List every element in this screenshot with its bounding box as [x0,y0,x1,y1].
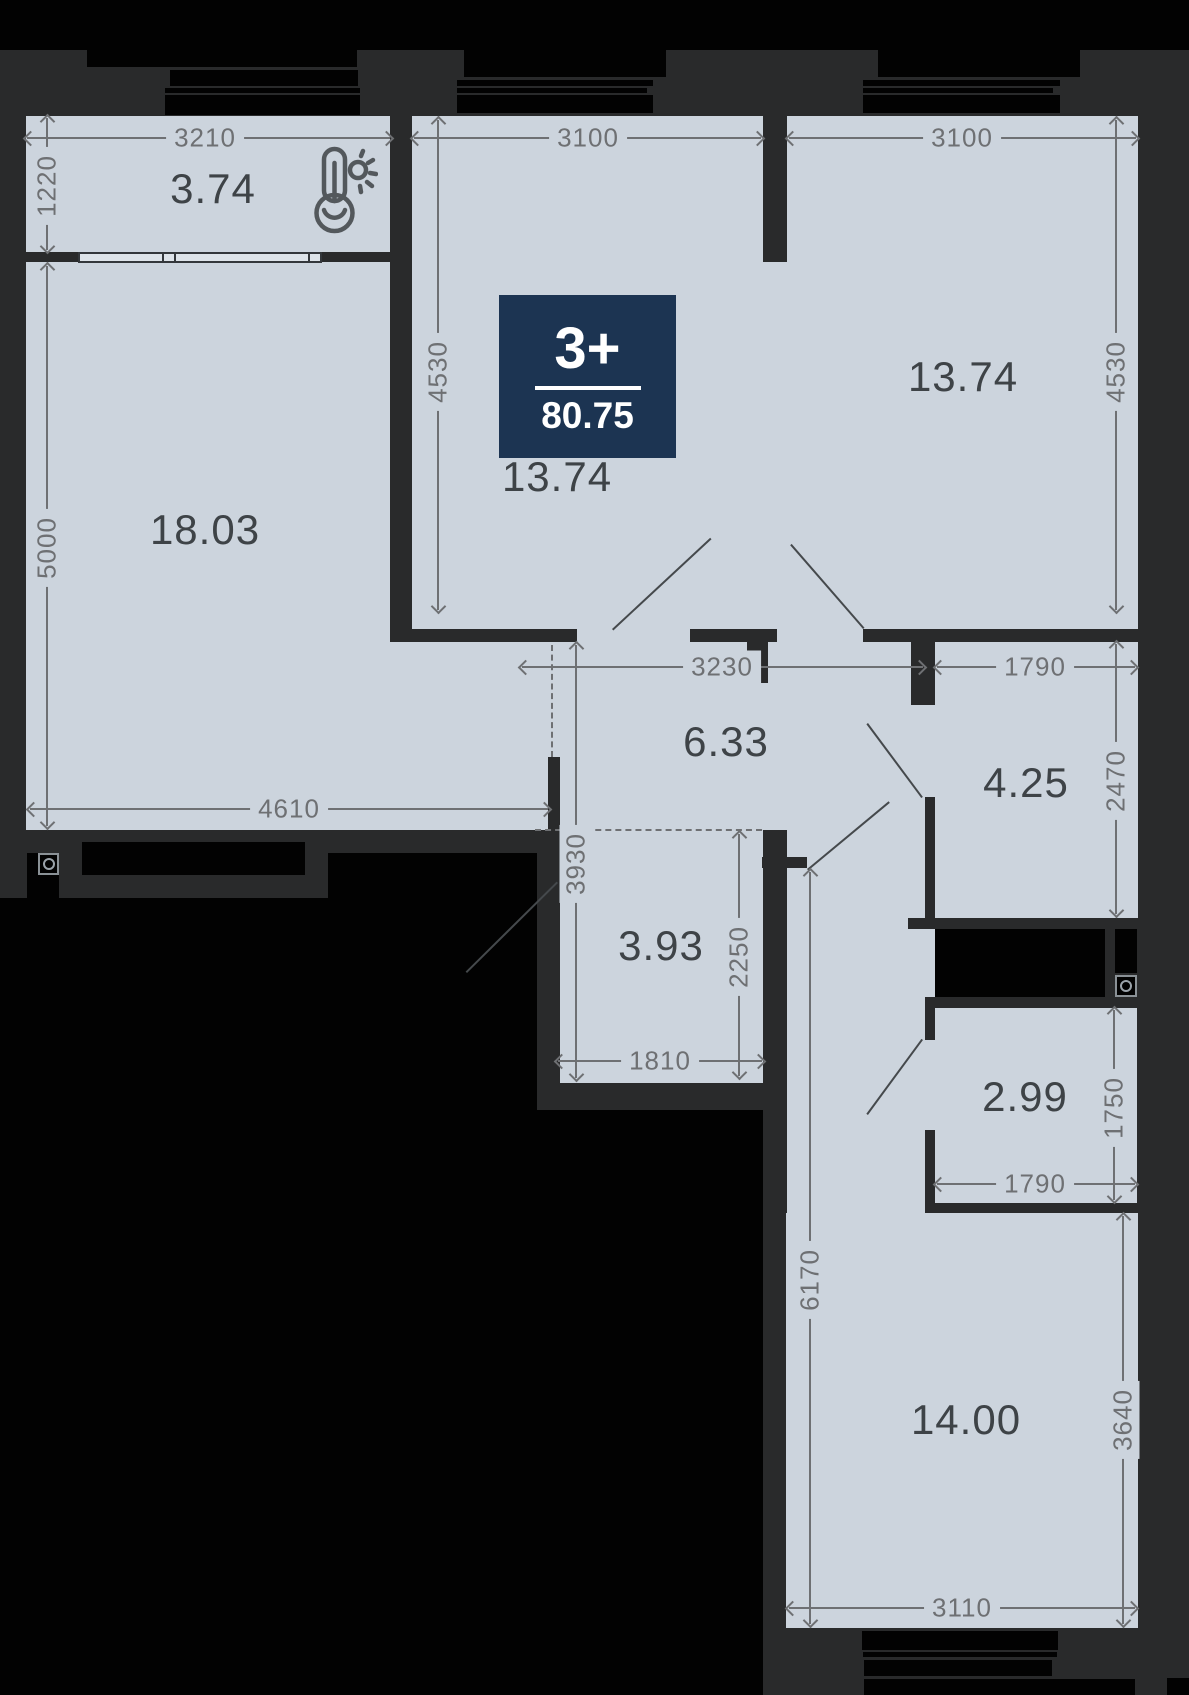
dimension-line: 4610 [30,808,548,810]
dimension-label: 2250 [723,918,756,996]
dimension-label: 3100 [923,122,1001,155]
wall [537,850,560,883]
room-area-label: 3.93 [618,922,704,970]
room-area-label: 3.74 [170,165,256,213]
neighbor-balcony [864,1679,1135,1695]
dimension-label: 1220 [31,147,64,225]
window-tick [174,254,176,261]
room-area-label: 14.00 [911,1396,1021,1444]
wall [908,918,1160,929]
neighbor-balcony [862,1631,1058,1650]
dimension-label: 1750 [1098,1069,1131,1147]
wall [762,857,807,868]
exterior-area [328,853,537,903]
dimension-label: 1790 [996,1168,1074,1201]
neighbor-balcony [863,1652,1057,1657]
dimension-line: 3930 [575,645,577,1078]
exterior-area [0,898,537,1695]
room-area-label: 13.74 [908,353,1018,401]
wall [390,629,577,642]
room-area-label: 6.33 [683,718,769,766]
exterior-area [537,1110,763,1695]
neighbor-balcony [878,30,1080,77]
dimension-label: 4530 [422,333,455,411]
apartment-rooms-label: 3+ [554,320,620,378]
neighbor-balcony [170,70,358,86]
dimension-label: 2470 [1100,742,1133,820]
dimension-label: 5000 [31,509,64,587]
neighbor-balcony [864,1660,1052,1676]
neighbor-balcony [863,88,1053,93]
dimension-label: 3210 [166,122,244,155]
room-area-label: 13.74 [502,453,612,501]
wall [537,1083,763,1110]
window-tick [308,254,310,261]
dimension-line: 1790 [937,666,1135,668]
neighbor-balcony [165,95,360,115]
cooktop-burner [1120,980,1132,992]
neighbor-balcony [457,95,653,113]
wall [925,1130,935,1213]
dimension-label: 3640 [1107,1381,1140,1459]
neighbor-balcony [457,80,653,86]
neighbor-balcony [165,88,360,93]
wall [390,262,412,630]
floor-plan: 3210 3100 3100 4610 3230 1790 1810 1790 … [0,0,1189,1695]
exterior-area [1167,1678,1189,1695]
apartment-badge: 3+ 80.75 [499,295,676,458]
wall [548,757,560,832]
neighbor-balcony [87,50,357,67]
badge-divider [535,386,641,390]
kitchen-counter [935,929,1105,997]
dimension-line: 1750 [1113,1010,1115,1200]
dimension-line: 1220 [46,118,48,250]
kitchen-counter [82,842,305,875]
dimension-line: 5000 [46,266,48,826]
dimension-line: 3210 [27,137,390,139]
neighbor-balcony [457,88,647,93]
cooktop-icon [1115,929,1137,973]
room-area-label: 2.99 [982,1073,1068,1121]
wall [925,1008,935,1040]
dimension-label: 3930 [560,825,593,903]
dimension-label: 1790 [996,651,1074,684]
window-tick [162,254,164,261]
dimension-label: 1810 [621,1045,699,1078]
wall [925,797,935,918]
dimension-line: 3230 [522,666,923,668]
wall [925,1203,1140,1213]
apartment-total-area: 80.75 [541,397,634,434]
dimension-line: 3640 [1122,1216,1124,1624]
dimension-line: 2470 [1115,644,1117,914]
dimension-line: 4530 [1115,120,1117,610]
dimension-label: 6170 [794,1241,827,1319]
dimension-line: 6170 [809,872,811,1624]
dimension-line: 3100 [789,137,1136,139]
room-area-label: 18.03 [150,506,260,554]
dimension-line: 3110 [789,1607,1135,1609]
dimension-line: 2250 [738,834,740,1076]
washing-machine-door [43,858,55,870]
dimension-label: 3230 [683,651,761,684]
dimension-label: 4530 [1100,333,1133,411]
dimension-line: 4530 [437,120,439,610]
dimension-label: 3100 [549,122,627,155]
wall [925,997,1160,1008]
wall [911,640,935,705]
zone-boundary-dashed [551,645,553,757]
dimension-label: 4610 [250,793,328,826]
dimension-label: 3110 [924,1592,1000,1625]
wall [537,973,560,1083]
neighbor-balcony [863,80,1060,86]
dimension-line: 1810 [558,1060,762,1062]
dimension-line: 1790 [937,1183,1135,1185]
dimension-line: 3100 [414,137,761,139]
window [78,252,322,263]
room-area-label: 4.25 [983,759,1069,807]
thermometer-sun-icon [308,146,378,238]
neighbor-balcony [464,30,666,77]
neighbor-balcony [863,95,1060,113]
